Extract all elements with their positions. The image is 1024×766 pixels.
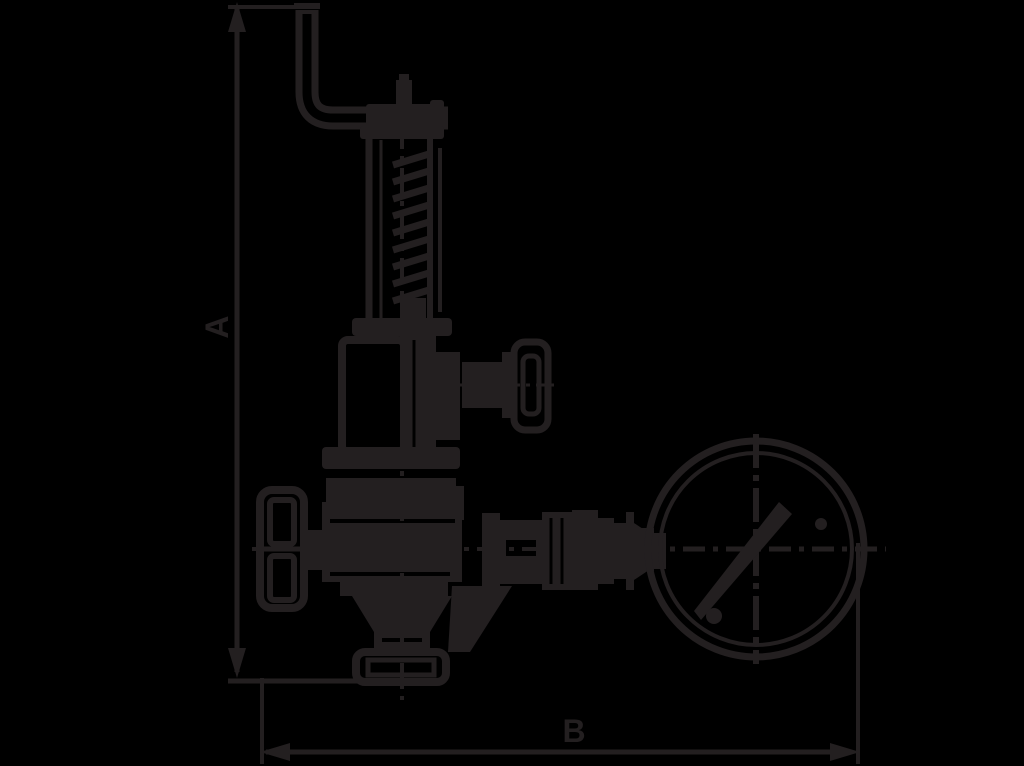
gauge-needle bbox=[694, 502, 792, 620]
dimension-b-label: B bbox=[562, 713, 585, 749]
spring-coils bbox=[393, 154, 429, 301]
dimension-a-label: A bbox=[199, 315, 235, 338]
gauge-dot-left bbox=[706, 608, 722, 624]
dimension-a-arrow-down bbox=[228, 648, 246, 678]
gauge-dot-right bbox=[815, 518, 827, 530]
drawing-canvas: A B bbox=[0, 0, 1024, 766]
lifting-lever bbox=[294, 6, 448, 118]
dimension-b-arrow-right bbox=[830, 743, 860, 761]
technical-drawing: A B bbox=[0, 0, 1024, 766]
pressure-gauge bbox=[640, 434, 886, 664]
spindle-cap bbox=[366, 74, 444, 130]
dimension-b-arrow-left bbox=[260, 743, 290, 761]
